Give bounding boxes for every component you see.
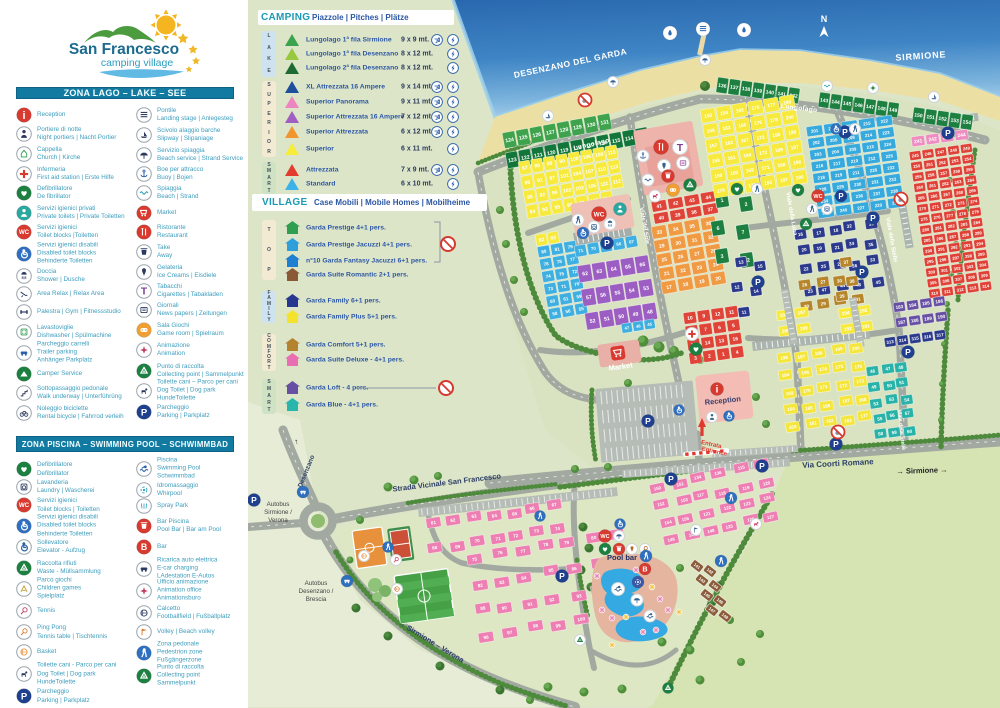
svg-text:290: 290 [925, 248, 933, 254]
svg-text:232: 232 [887, 165, 896, 171]
svg-text:140: 140 [765, 89, 774, 96]
svg-text:281: 281 [935, 225, 943, 231]
svg-text:16: 16 [732, 336, 739, 343]
svg-text:317: 317 [936, 332, 945, 338]
svg-text:62: 62 [582, 271, 589, 278]
svg-text:315: 315 [911, 335, 920, 341]
svg-text:152: 152 [938, 116, 947, 123]
svg-text:270: 270 [919, 205, 927, 211]
svg-text:145: 145 [843, 101, 852, 108]
svg-text:283: 283 [960, 221, 968, 227]
svg-text:273: 273 [957, 200, 965, 206]
svg-text:14: 14 [704, 340, 711, 347]
svg-text:301: 301 [941, 267, 949, 273]
svg-text:306: 306 [942, 278, 950, 284]
svg-text:300: 300 [928, 269, 936, 275]
svg-text:259: 259 [966, 167, 974, 173]
svg-text:277: 277 [946, 212, 954, 218]
svg-text:296: 296 [939, 257, 947, 263]
svg-text:Brescia: Brescia [306, 596, 327, 603]
svg-text:272: 272 [944, 202, 952, 208]
svg-text:257: 257 [940, 170, 948, 176]
svg-text:154: 154 [962, 119, 971, 126]
svg-text:291: 291 [938, 246, 946, 252]
svg-text:Autobus: Autobus [305, 580, 328, 587]
svg-text:i: i [716, 385, 719, 396]
svg-text:263: 263 [954, 179, 962, 185]
svg-text:292: 292 [950, 244, 958, 250]
svg-text:P: P [755, 277, 761, 287]
svg-text:P: P [559, 571, 565, 581]
svg-text:254: 254 [964, 156, 972, 162]
svg-text:284: 284 [973, 219, 981, 225]
svg-text:248: 248 [950, 147, 958, 153]
svg-text:San Francesco: San Francesco [69, 41, 179, 58]
svg-text:252: 252 [938, 160, 946, 166]
svg-text:247: 247 [937, 149, 945, 155]
svg-text:266: 266 [930, 193, 938, 199]
svg-text:195: 195 [859, 308, 868, 315]
svg-text:295: 295 [926, 258, 934, 264]
svg-text:13: 13 [718, 338, 725, 345]
svg-text:199: 199 [799, 325, 808, 332]
svg-text:286: 286 [936, 235, 944, 241]
svg-text:51: 51 [604, 316, 611, 323]
svg-text:253: 253 [951, 158, 959, 164]
svg-text:288: 288 [962, 232, 970, 238]
svg-text:285: 285 [923, 237, 931, 243]
svg-text:i: i [22, 109, 25, 121]
svg-text:194: 194 [841, 310, 850, 317]
svg-text:Verona: Verona [268, 517, 288, 524]
svg-text:255: 255 [914, 174, 922, 180]
svg-text:WC: WC [18, 503, 29, 510]
svg-text:Desenzano /: Desenzano / [299, 588, 334, 595]
svg-text:305: 305 [929, 280, 937, 286]
svg-text:65: 65 [625, 264, 632, 271]
svg-text:256: 256 [927, 172, 935, 178]
svg-text:48: 48 [647, 309, 654, 316]
svg-text:264: 264 [967, 177, 975, 183]
svg-text:307: 307 [955, 276, 963, 282]
svg-text:55: 55 [614, 290, 621, 297]
svg-text:139: 139 [753, 88, 762, 95]
svg-text:10: 10 [687, 315, 694, 322]
svg-text:P: P [838, 192, 843, 201]
svg-text:147: 147 [865, 104, 874, 111]
svg-text:P: P [833, 439, 839, 449]
svg-text:Pool bar: Pool bar [607, 553, 637, 562]
svg-text:261: 261 [929, 183, 937, 189]
svg-text:269: 269 [968, 188, 976, 194]
svg-text:144: 144 [831, 99, 840, 106]
svg-text:P: P [842, 127, 848, 137]
svg-text:P: P [140, 407, 147, 418]
svg-text:138: 138 [741, 86, 750, 93]
svg-text:275: 275 [920, 216, 928, 222]
svg-text:211: 211 [852, 170, 860, 176]
svg-text:250: 250 [913, 163, 921, 169]
svg-text:Sirmione /: Sirmione / [264, 509, 292, 516]
svg-text:P: P [859, 267, 865, 277]
svg-text:293: 293 [963, 242, 971, 248]
svg-text:308: 308 [968, 274, 976, 280]
svg-text:313: 313 [886, 339, 895, 345]
svg-text:52: 52 [589, 318, 596, 325]
svg-text:309: 309 [980, 272, 988, 278]
svg-text:N: N [821, 14, 828, 24]
svg-text:245: 245 [911, 153, 919, 159]
svg-text:50: 50 [618, 314, 625, 321]
svg-text:137: 137 [730, 84, 739, 91]
svg-text:226: 226 [870, 167, 879, 173]
svg-text:53: 53 [643, 285, 650, 292]
svg-text:287: 287 [949, 234, 957, 240]
svg-text:146: 146 [854, 102, 863, 109]
svg-text:249: 249 [963, 145, 971, 151]
svg-text:191: 191 [861, 323, 870, 330]
svg-text:P: P [604, 238, 610, 248]
svg-text:P: P [668, 474, 674, 484]
svg-text:148: 148 [877, 105, 886, 112]
svg-text:312: 312 [956, 287, 964, 293]
svg-text:WC: WC [813, 194, 822, 200]
svg-text:303: 303 [966, 264, 974, 270]
svg-text:149: 149 [888, 107, 897, 114]
svg-text:P: P [870, 213, 876, 223]
svg-text:276: 276 [933, 214, 941, 220]
svg-text:11: 11 [729, 309, 735, 316]
svg-text:289: 289 [974, 230, 982, 236]
svg-text:192: 192 [844, 326, 853, 333]
svg-text:278: 278 [959, 211, 967, 217]
svg-text:T: T [677, 142, 684, 154]
svg-text:260: 260 [916, 184, 924, 190]
svg-text:267: 267 [943, 191, 951, 197]
svg-text:P: P [645, 416, 651, 426]
svg-text:197: 197 [797, 310, 806, 317]
svg-text:P: P [759, 461, 765, 471]
svg-text:54: 54 [628, 288, 635, 295]
svg-text:313: 313 [969, 285, 977, 291]
svg-text:66: 66 [639, 262, 646, 269]
svg-text:298: 298 [965, 253, 973, 259]
svg-text:246: 246 [924, 151, 932, 157]
svg-text:WC: WC [600, 534, 609, 540]
svg-text:57: 57 [586, 294, 593, 301]
svg-text:B: B [642, 565, 647, 574]
svg-text:297: 297 [952, 255, 960, 261]
svg-text:262: 262 [941, 181, 949, 187]
svg-text:12: 12 [715, 311, 722, 318]
svg-text:218: 218 [817, 175, 826, 181]
svg-text:242: 242 [928, 136, 937, 143]
svg-text:299: 299 [977, 251, 985, 257]
svg-text:Autobus: Autobus [267, 501, 290, 508]
svg-text:151: 151 [926, 114, 935, 121]
svg-text:→ Sirmione →: → Sirmione → [896, 465, 948, 476]
svg-text:T: T [140, 287, 147, 298]
svg-text:294: 294 [976, 241, 984, 247]
svg-text:136: 136 [718, 83, 727, 90]
svg-text:P: P [251, 495, 257, 505]
svg-text:282: 282 [947, 223, 955, 229]
svg-text:143: 143 [820, 97, 829, 104]
svg-text:302: 302 [953, 265, 961, 271]
svg-text:265: 265 [917, 195, 925, 201]
svg-text:271: 271 [932, 204, 940, 210]
svg-text:219: 219 [835, 172, 844, 178]
svg-text:P: P [945, 128, 951, 138]
svg-text:P: P [20, 692, 27, 703]
svg-text:279: 279 [971, 209, 979, 215]
svg-text:258: 258 [953, 168, 961, 174]
svg-text:280: 280 [922, 227, 930, 233]
svg-text:241: 241 [914, 138, 923, 145]
svg-text:316: 316 [924, 334, 933, 340]
svg-text:314: 314 [899, 337, 908, 343]
svg-text:304: 304 [979, 262, 987, 268]
svg-text:63: 63 [596, 269, 603, 276]
svg-text:64: 64 [611, 266, 618, 273]
svg-text:244: 244 [957, 132, 966, 139]
svg-text:camping village: camping village [101, 57, 174, 69]
svg-text:P: P [905, 347, 911, 357]
svg-text:310: 310 [931, 290, 939, 296]
svg-text:WC: WC [594, 211, 605, 218]
svg-text:B: B [140, 542, 146, 552]
svg-text:49: 49 [632, 311, 639, 318]
svg-text:153: 153 [950, 118, 959, 125]
svg-text:150: 150 [914, 112, 923, 119]
svg-text:WC: WC [18, 229, 29, 236]
svg-text:274: 274 [970, 198, 978, 204]
svg-text:56: 56 [600, 292, 607, 299]
svg-text:314: 314 [982, 283, 990, 289]
svg-text:268: 268 [956, 190, 964, 196]
svg-text:251: 251 [926, 161, 934, 167]
